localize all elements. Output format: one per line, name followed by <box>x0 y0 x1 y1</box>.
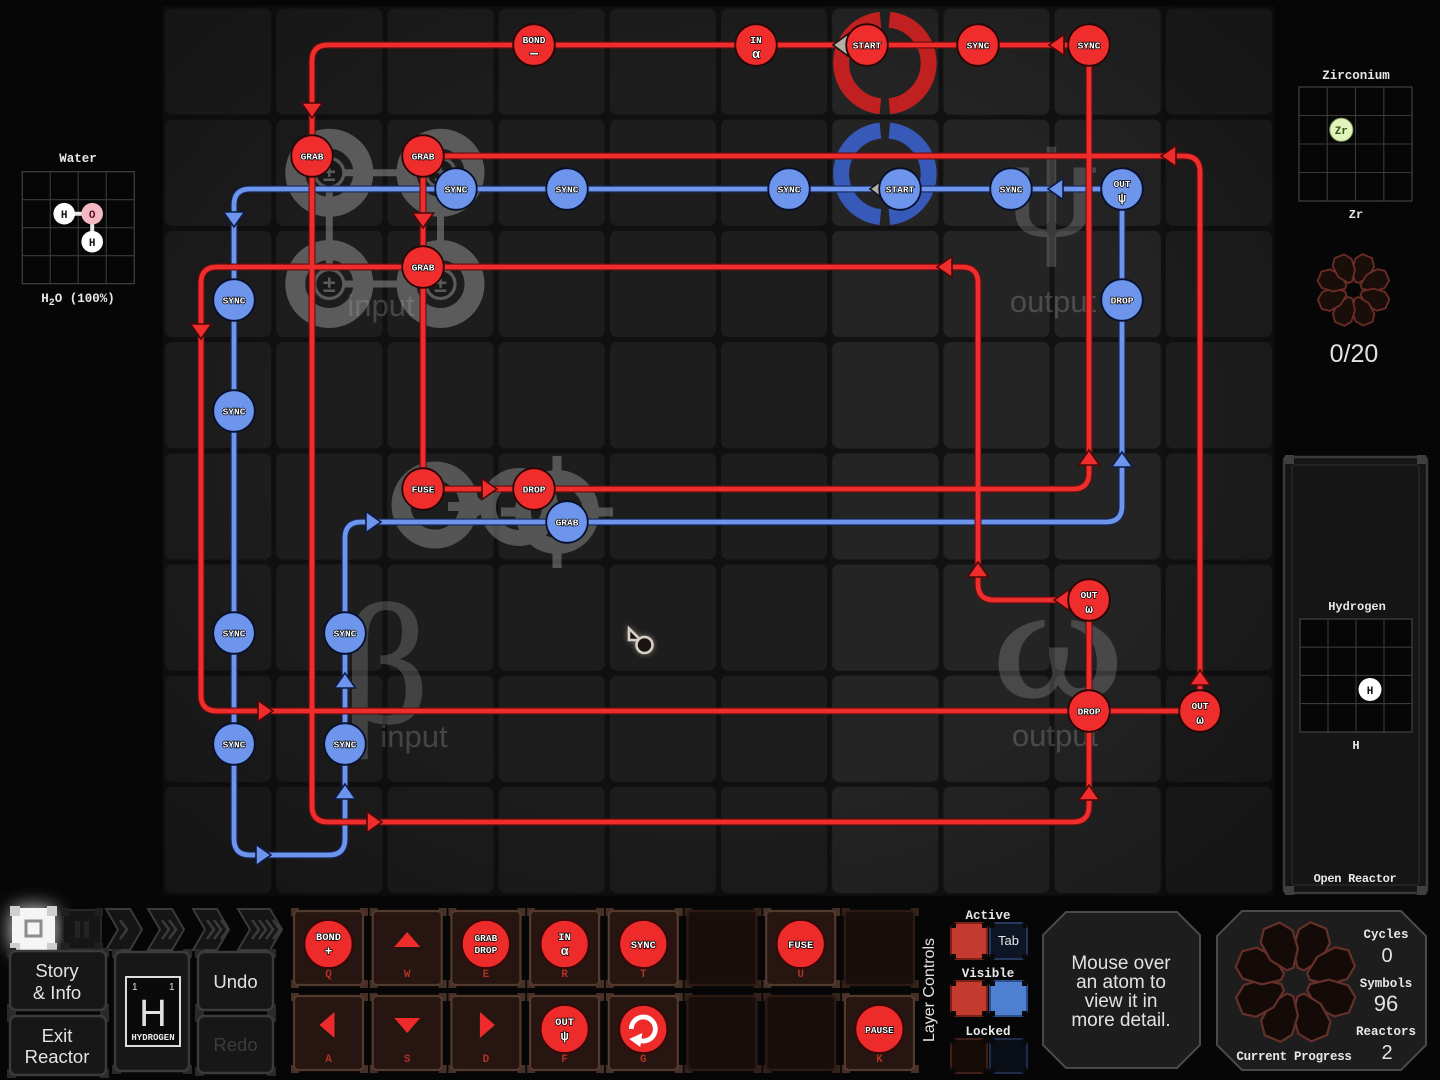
svg-text:START: START <box>886 185 915 196</box>
svg-text:Water: Water <box>59 152 97 166</box>
svg-text:GRAB: GRAB <box>556 518 579 529</box>
svg-text:ω: ω <box>1196 713 1204 728</box>
svg-text:PAUSE: PAUSE <box>865 1025 894 1036</box>
svg-text:view it in: view it in <box>1085 991 1158 1012</box>
svg-text:1: 1 <box>169 982 175 993</box>
svg-text:E: E <box>483 969 490 981</box>
svg-text:H: H <box>1352 739 1359 753</box>
svg-text:SYNC: SYNC <box>1000 185 1023 196</box>
svg-text:0: 0 <box>1381 945 1392 967</box>
svg-text:T: T <box>640 969 647 981</box>
svg-text:SYNC: SYNC <box>445 185 468 196</box>
svg-text:FUSE: FUSE <box>412 485 435 496</box>
svg-text:Zr: Zr <box>1335 126 1348 138</box>
svg-text:H: H <box>89 238 96 250</box>
svg-text:Visible: Visible <box>962 967 1015 981</box>
svg-text:±: ± <box>322 273 336 299</box>
svg-text:D: D <box>483 1054 490 1066</box>
svg-text:U: U <box>797 969 804 981</box>
svg-text:DROP: DROP <box>1111 296 1134 307</box>
svg-text:more detail.: more detail. <box>1071 1010 1170 1031</box>
svg-text:α: α <box>561 944 569 959</box>
svg-text:G: G <box>640 1054 647 1066</box>
svg-text:O: O <box>89 210 96 222</box>
svg-text:Locked: Locked <box>965 1025 1010 1039</box>
svg-text:DROP: DROP <box>523 485 546 496</box>
svg-text:IN: IN <box>558 932 571 944</box>
svg-text:Story: Story <box>35 960 79 981</box>
svg-text:OUT: OUT <box>555 1017 574 1029</box>
svg-text:START: START <box>853 41 882 52</box>
svg-text:S: S <box>404 1054 411 1066</box>
svg-text:GRAB: GRAB <box>474 933 497 944</box>
svg-text:Cycles: Cycles <box>1363 928 1408 942</box>
svg-text:FUSE: FUSE <box>788 940 813 952</box>
svg-text:OUT: OUT <box>1191 701 1208 712</box>
svg-text:Zr: Zr <box>1349 208 1363 222</box>
svg-text:Zirconium: Zirconium <box>1322 69 1390 83</box>
svg-text:SYNC: SYNC <box>967 41 990 52</box>
svg-text:H: H <box>139 993 166 1035</box>
svg-text:Redo: Redo <box>213 1034 257 1055</box>
svg-text:2: 2 <box>1381 1042 1392 1064</box>
svg-text:Reactors: Reactors <box>1356 1025 1416 1039</box>
svg-text:output: output <box>1010 284 1097 319</box>
svg-text:an atom to: an atom to <box>1076 972 1166 993</box>
svg-text:ψ: ψ <box>561 1029 569 1044</box>
svg-text:SYNC: SYNC <box>223 407 246 418</box>
svg-text:W: W <box>404 969 411 981</box>
svg-text:96: 96 <box>1374 991 1398 1016</box>
svg-text:A: A <box>325 1054 332 1066</box>
svg-text:OUT: OUT <box>1080 590 1097 601</box>
svg-text:Q: Q <box>325 969 332 981</box>
svg-text:SYNC: SYNC <box>334 740 357 751</box>
svg-text:Current Progress: Current Progress <box>1236 1050 1351 1064</box>
svg-text:SYNC: SYNC <box>223 740 246 751</box>
svg-text:IN: IN <box>750 35 762 46</box>
svg-text:Symbols: Symbols <box>1360 977 1413 991</box>
svg-text:HYDROGEN: HYDROGEN <box>131 1033 174 1043</box>
svg-text:1: 1 <box>132 982 138 993</box>
svg-text:Mouse over: Mouse over <box>1071 953 1171 974</box>
svg-text:Hydrogen: Hydrogen <box>1328 600 1386 614</box>
svg-text:Exit: Exit <box>42 1025 73 1046</box>
svg-text:0/20: 0/20 <box>1330 340 1379 368</box>
svg-text:SYNC: SYNC <box>334 629 357 640</box>
svg-text:K: K <box>876 1054 883 1066</box>
svg-text:BOND: BOND <box>316 932 341 944</box>
svg-text:F: F <box>561 1054 568 1066</box>
svg-text:DROP: DROP <box>1078 707 1101 718</box>
svg-text:GRAB: GRAB <box>412 263 435 274</box>
svg-text:Open Reactor: Open Reactor <box>1314 872 1397 886</box>
svg-text:H: H <box>61 210 68 222</box>
svg-text:SYNC: SYNC <box>223 296 246 307</box>
svg-text:−: − <box>529 46 539 64</box>
svg-text:BOND: BOND <box>523 35 546 46</box>
svg-text:DROP: DROP <box>474 945 497 956</box>
svg-text:+: + <box>325 944 333 959</box>
svg-text:OUT: OUT <box>1113 179 1130 190</box>
svg-text:ψ: ψ <box>1118 191 1126 206</box>
svg-text:SYNC: SYNC <box>631 940 657 952</box>
svg-text:SYNC: SYNC <box>1078 41 1101 52</box>
svg-text:GRAB: GRAB <box>412 152 435 163</box>
svg-text:R: R <box>561 969 568 981</box>
svg-text:α: α <box>752 47 760 62</box>
svg-text:Active: Active <box>965 909 1010 923</box>
svg-text:SYNC: SYNC <box>556 185 579 196</box>
svg-text:Tab: Tab <box>998 933 1019 948</box>
svg-text:Undo: Undo <box>213 971 257 992</box>
svg-text:input: input <box>380 719 448 754</box>
svg-text:Reactor: Reactor <box>25 1046 90 1067</box>
svg-text:& Info: & Info <box>33 982 81 1003</box>
svg-text:SYNC: SYNC <box>778 185 801 196</box>
svg-text:ω: ω <box>1085 602 1093 617</box>
svg-text:Layer Controls: Layer Controls <box>921 938 938 1042</box>
svg-text:H: H <box>1367 686 1374 698</box>
svg-text:GRAB: GRAB <box>301 152 324 163</box>
svg-text:SYNC: SYNC <box>223 629 246 640</box>
